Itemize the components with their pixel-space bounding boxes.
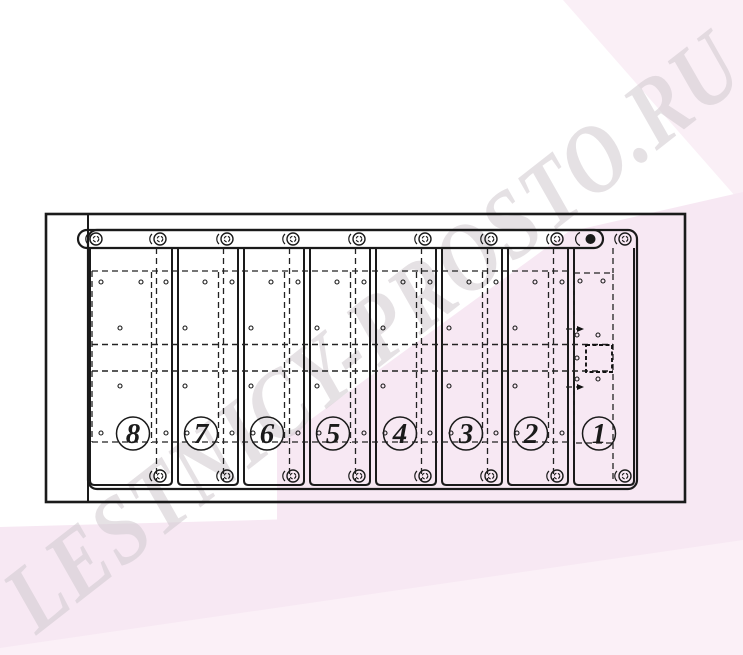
screw-hole: [575, 377, 579, 381]
screw-hole: [269, 280, 273, 284]
screw-hole: [578, 279, 582, 283]
washer-fastener-icon: [615, 470, 631, 482]
step-number-2: 2: [523, 418, 539, 450]
screw-hole: [596, 333, 600, 337]
step-number-3: 3: [458, 418, 474, 450]
screw-hole: [99, 280, 103, 284]
step-number-7: 7: [194, 418, 210, 450]
screw-hole: [513, 326, 517, 330]
screw-hole: [560, 431, 564, 435]
screw-hole: [560, 280, 564, 284]
step-number-5: 5: [326, 418, 341, 450]
washer-fastener-icon: [547, 470, 563, 482]
screw-hole: [428, 431, 432, 435]
screw-hole: [249, 326, 253, 330]
technical-drawing: LESTNICY-PROSTO.RU 87654321: [0, 0, 743, 655]
screw-hole: [362, 431, 366, 435]
screw-hole: [494, 431, 498, 435]
washer-fastener-icon: [150, 233, 166, 245]
screw-hole: [601, 279, 605, 283]
screw-hole: [139, 280, 143, 284]
watermark-text: LESTNICY-PROSTO.RU: [0, 9, 743, 652]
screw-hole: [335, 280, 339, 284]
washer-fastener-icon: [217, 233, 233, 245]
screw-hole: [183, 384, 187, 388]
screw-hole: [183, 326, 187, 330]
screenshot-root: LESTNICY-PROSTO.RU 87654321: [0, 0, 743, 655]
step-number-1: 1: [592, 418, 607, 450]
washer-fastener-icon: [283, 233, 299, 245]
step-number-8: 8: [126, 418, 141, 450]
screw-hole: [533, 280, 537, 284]
screw-hole: [118, 326, 122, 330]
rail-end-pin: [586, 234, 596, 244]
screw-hole: [513, 384, 517, 388]
washer-fastener-icon: [283, 470, 299, 482]
washer-fastener-icon: [349, 470, 365, 482]
leader-arrowhead-icon: [577, 384, 584, 390]
washer-fastener-icon: [481, 470, 497, 482]
screw-hole: [164, 280, 168, 284]
screw-hole: [203, 280, 207, 284]
screw-hole: [230, 280, 234, 284]
screw-hole: [99, 431, 103, 435]
washer-fastener-icon: [615, 233, 631, 245]
screw-hole: [575, 333, 579, 337]
step-number-4: 4: [392, 418, 408, 450]
screw-hole: [447, 384, 451, 388]
hidden-bracket-box: [586, 345, 612, 372]
washer-fastener-icon: [415, 470, 431, 482]
screw-hole: [515, 431, 519, 435]
step-number-6: 6: [260, 418, 275, 450]
leader-arrowhead-icon: [577, 326, 584, 332]
screw-hole: [596, 377, 600, 381]
screw-hole: [575, 356, 579, 360]
washer-fastener-icon: [349, 233, 365, 245]
screw-hole: [296, 280, 300, 284]
screw-hole: [118, 384, 122, 388]
